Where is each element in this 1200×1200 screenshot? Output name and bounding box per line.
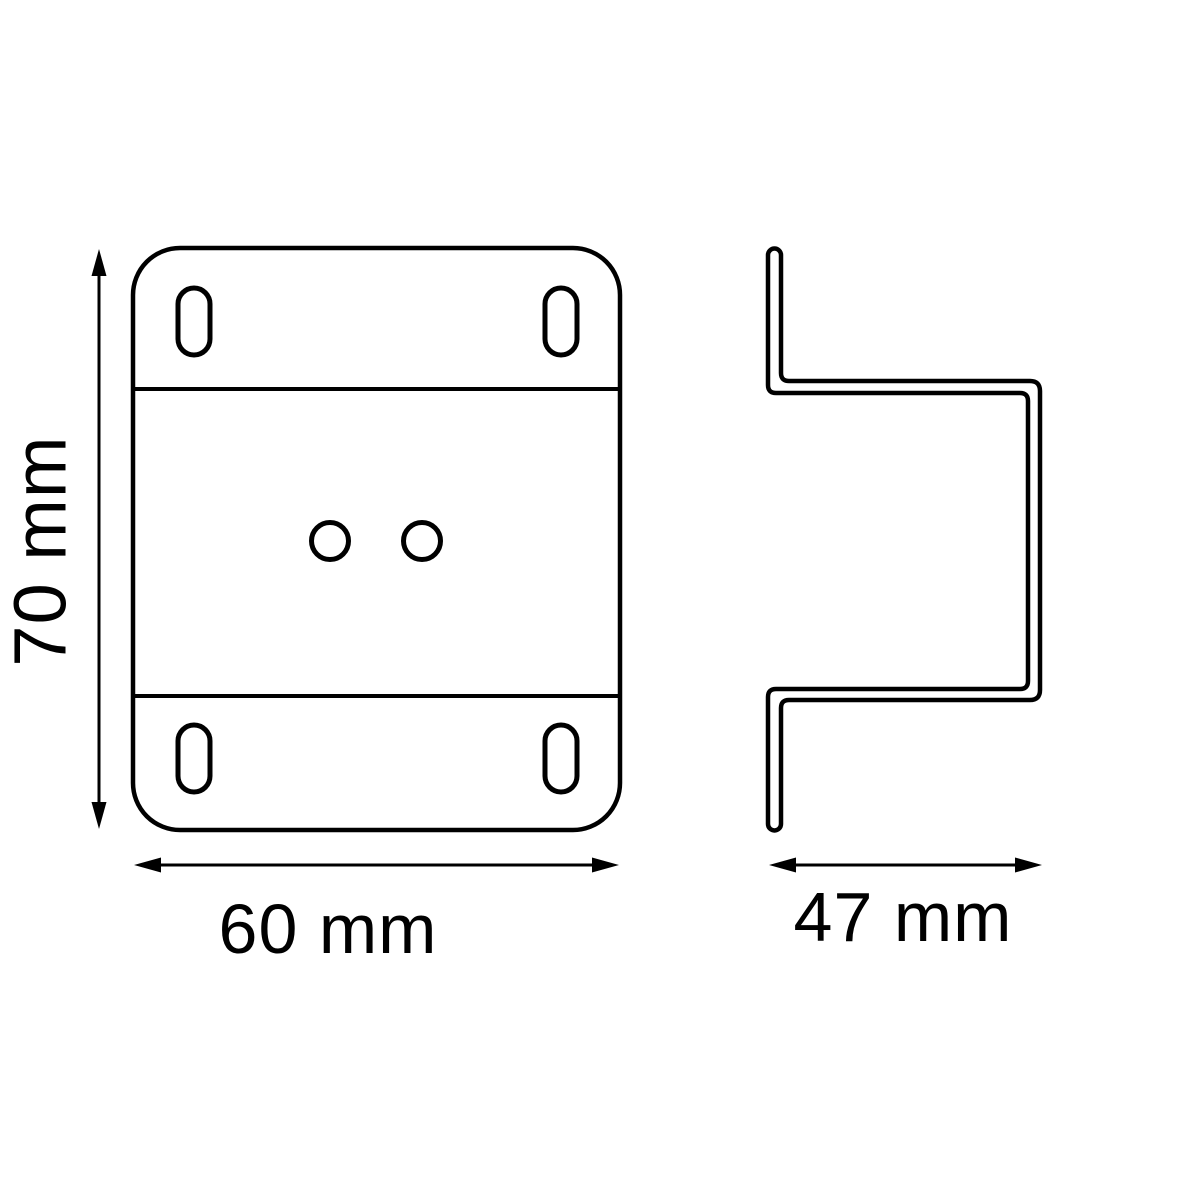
- depth-dimension: 47 mm: [769, 858, 1042, 957]
- profile-outline: [768, 249, 1040, 831]
- depth-arrowhead-right-icon: [1015, 858, 1042, 873]
- depth-dimension-label: 47 mm: [794, 878, 1013, 956]
- side-view: [768, 249, 1040, 831]
- mounting-slot-top-right: [545, 288, 577, 355]
- width-arrowhead-left-icon: [134, 858, 161, 873]
- bracket-dimension-drawing: 70 mm 60 mm 47 mm: [0, 0, 1200, 1200]
- width-dimension: 60 mm: [134, 858, 619, 969]
- height-dimension-label: 70 mm: [0, 435, 82, 666]
- height-arrowhead-bottom-icon: [92, 802, 107, 829]
- front-view: [133, 248, 620, 830]
- width-arrowhead-right-icon: [592, 858, 619, 873]
- technical-drawing-canvas: 70 mm 60 mm 47 mm: [0, 0, 1200, 1200]
- depth-arrowhead-left-icon: [769, 858, 796, 873]
- height-arrowhead-top-icon: [92, 249, 107, 276]
- center-hole-right: [404, 523, 441, 560]
- mounting-slot-bottom-left: [178, 725, 210, 792]
- center-hole-left: [312, 523, 349, 560]
- mounting-slot-top-left: [178, 288, 210, 355]
- height-dimension: 70 mm: [0, 249, 107, 829]
- mounting-slot-bottom-right: [545, 725, 577, 792]
- width-dimension-label: 60 mm: [219, 890, 438, 968]
